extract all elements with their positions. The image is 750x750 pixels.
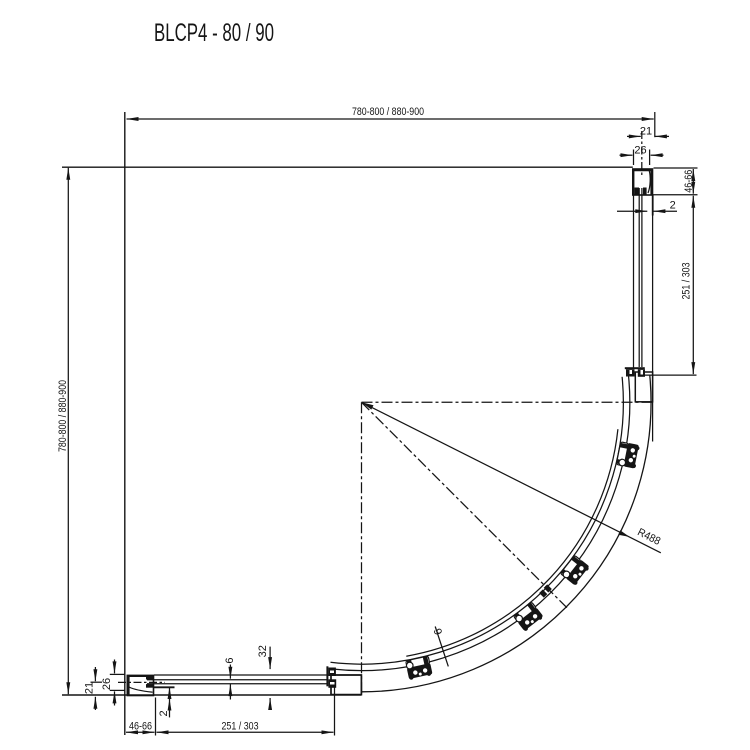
- svg-text:251 / 303: 251 / 303: [222, 721, 259, 733]
- svg-text:R488: R488: [635, 526, 662, 548]
- svg-text:46-66: 46-66: [129, 721, 152, 733]
- svg-text:6: 6: [224, 657, 236, 663]
- svg-text:251 / 303: 251 / 303: [681, 263, 693, 300]
- svg-text:6: 6: [432, 627, 445, 637]
- svg-text:32: 32: [257, 645, 269, 657]
- svg-text:21: 21: [640, 126, 652, 138]
- svg-text:780-800 / 880-900: 780-800 / 880-900: [352, 106, 424, 118]
- svg-text:26: 26: [101, 678, 113, 690]
- svg-text:26: 26: [634, 144, 646, 156]
- svg-text:2: 2: [158, 710, 170, 716]
- svg-text:BLCP4 - 80 / 90: BLCP4 - 80 / 90: [154, 19, 274, 47]
- svg-text:780-800 / 880-900: 780-800 / 880-900: [57, 380, 69, 452]
- svg-text:21: 21: [83, 682, 95, 694]
- svg-text:2: 2: [670, 200, 676, 212]
- svg-text:46-66: 46-66: [683, 170, 695, 193]
